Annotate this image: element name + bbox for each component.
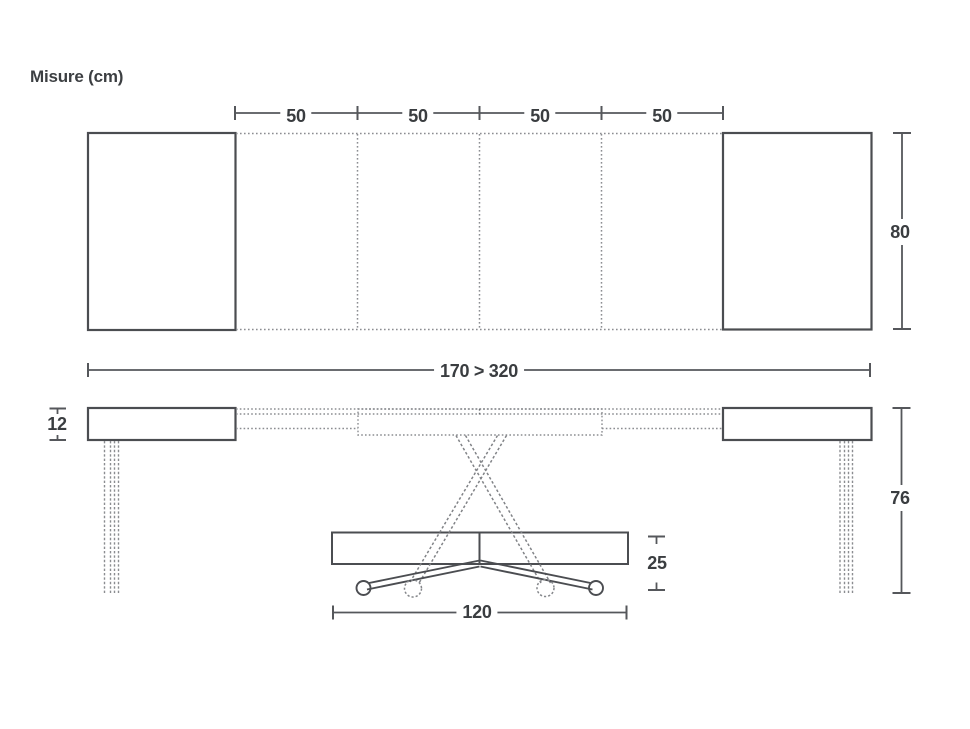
side-view-left-leg — [105, 441, 119, 594]
top-view-right-panel — [723, 133, 872, 330]
mechanism-base-box — [332, 533, 628, 565]
dim-label-base-width-120: 120 — [456, 602, 497, 622]
dim-label-width-range: 170 > 320 — [434, 361, 524, 381]
dim-label-depth-80: 80 — [887, 219, 912, 245]
right-wheel-ghost-icon — [537, 580, 554, 597]
dim-label-extension-2: 50 — [402, 106, 433, 126]
page-title: Misure (cm) — [30, 67, 123, 87]
measurement-drawing-page: Misure (cm) 50 50 50 50 80 170 > 320 12 … — [0, 0, 970, 729]
mechanism-wheel-alternate-positions — [405, 580, 555, 598]
dim-label-extension-3: 50 — [524, 106, 555, 126]
side-view-hidden-leaves — [236, 409, 722, 435]
top-view-extension-leaves — [236, 134, 722, 330]
left-wheel-icon — [357, 581, 371, 595]
dim-label-extension-4: 50 — [646, 106, 677, 126]
mechanism-folded-legs — [357, 561, 604, 596]
left-wheel-ghost-icon — [405, 580, 422, 597]
right-wheel-icon — [589, 581, 603, 595]
dim-label-extension-1: 50 — [280, 106, 311, 126]
side-view-right-top — [723, 408, 872, 440]
dim-label-base-height-25: 25 — [644, 550, 669, 576]
side-view-left-top — [88, 408, 236, 440]
dim-label-height-76: 76 — [887, 485, 912, 511]
dim-label-thickness-12: 12 — [45, 414, 68, 434]
side-view-right-leg — [840, 441, 853, 594]
top-view-left-panel — [88, 133, 236, 330]
